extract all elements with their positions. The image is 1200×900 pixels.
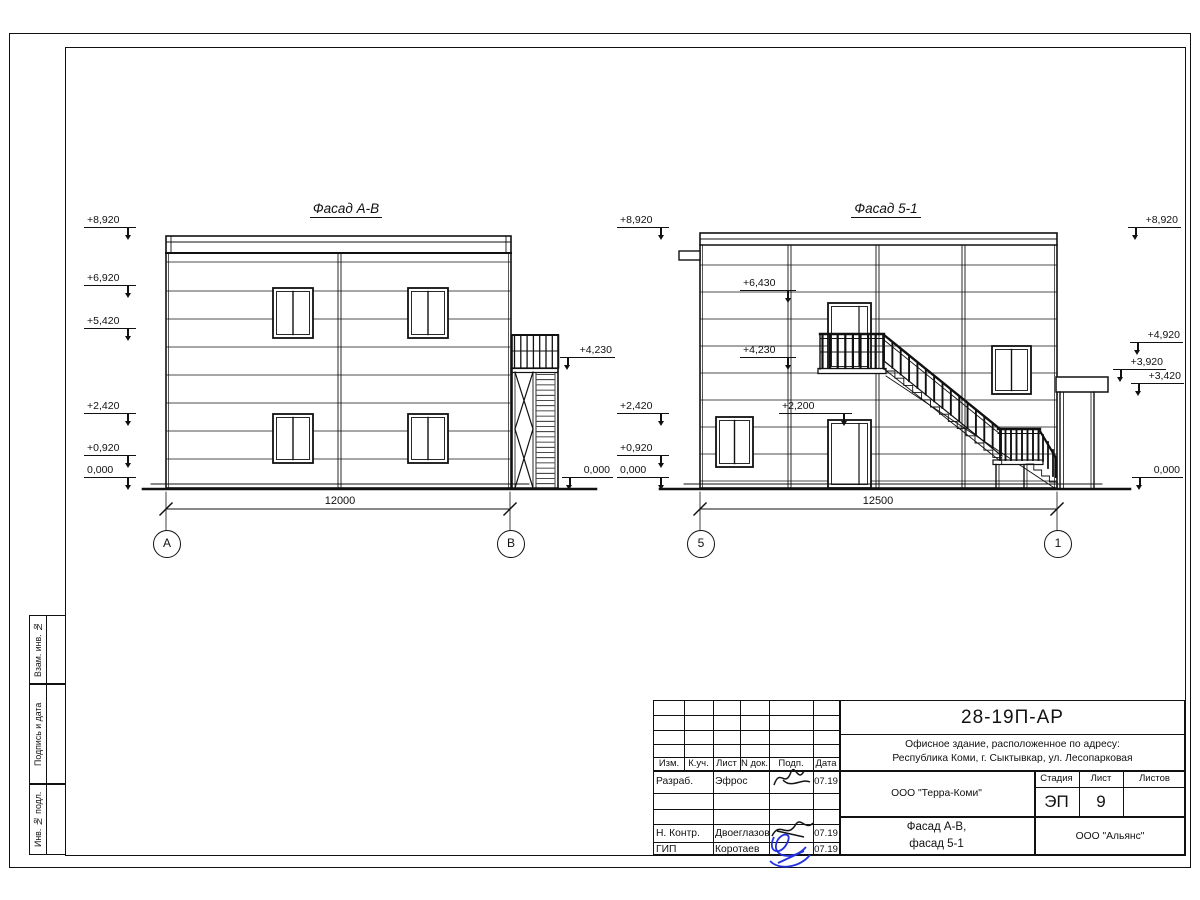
elevation-mark: +0,920 (84, 442, 136, 456)
elevation-mark: +6,430 (740, 277, 796, 291)
divider (46, 616, 47, 683)
row-role: ГИП (656, 842, 712, 856)
side-stamp-label: Взам. инв. № (30, 616, 46, 683)
row-name: Эфрос (715, 770, 768, 793)
axis-marker-5: 5 (687, 530, 715, 558)
facade-51-title: Фасад 5-1 (826, 201, 946, 217)
elevation-mark: +4,230 (740, 344, 796, 358)
row-name: Коротаев (715, 842, 769, 856)
elevation-mark: 0,000 (84, 464, 136, 478)
dimension-value: 12500 (843, 495, 913, 507)
side-stamp-inv: Инв. № подл. (29, 784, 66, 855)
sheet-number: 9 (1079, 787, 1123, 816)
sheets-label: Листов (1123, 770, 1186, 787)
facade-ab-wall (166, 236, 511, 488)
contractor-org: ООО "Альянс" (1034, 816, 1186, 856)
axis-marker-a: А (153, 530, 181, 558)
row-date: 07.19 (813, 770, 839, 793)
elevation-mark: +0,920 (617, 442, 669, 456)
col-kuch: К.уч. (684, 757, 713, 770)
facade-ab-ground-line (143, 484, 596, 489)
stage-label: Стадия (1034, 770, 1079, 787)
design-org: ООО "Терра-Коми" (839, 770, 1034, 816)
facade-ab-title: Фасад А-В (286, 201, 406, 217)
col-izm: Изм. (654, 757, 684, 770)
divider (46, 685, 47, 783)
dimension-value: 12000 (305, 495, 375, 507)
elevation-mark: +4,230 (560, 344, 615, 358)
col-data: Дата (813, 757, 839, 770)
elevation-mark: +5,420 (84, 315, 136, 329)
document-code: 28-19П-АР (839, 701, 1186, 734)
elevation-mark: +2,200 (779, 400, 852, 414)
elevation-mark: +2,420 (84, 400, 136, 414)
facade-ab-stair-tower (511, 335, 559, 488)
elevation-mark: +8,920 (84, 214, 136, 228)
col-list: Лист (713, 757, 740, 770)
elevation-mark: 0,000 (562, 464, 613, 478)
axis-marker-1: 1 (1044, 530, 1072, 558)
signature-gip (764, 829, 818, 873)
elevation-mark: +3,920 (1113, 356, 1166, 370)
sheet-label: Лист (1079, 770, 1123, 787)
elevation-mark: +6,920 (84, 272, 136, 286)
object-address-line2: Республика Коми, г. Сыктывкар, ул. Лесоп… (839, 751, 1186, 765)
elevation-mark: +8,920 (617, 214, 669, 228)
elevation-mark: +4,920 (1130, 329, 1183, 343)
side-stamp-label: Инв. № подл. (30, 785, 46, 854)
divider (46, 785, 47, 854)
elevation-mark: +2,420 (617, 400, 669, 414)
facade-ab-windows (273, 288, 448, 463)
col-ndok: N док. (740, 757, 769, 770)
elevation-mark: +8,920 (1128, 214, 1181, 228)
row-role: Н. Контр. (656, 824, 712, 842)
facade-51-annex-canopy (1056, 377, 1108, 488)
row-role: Разраб. (656, 770, 712, 793)
side-stamp-vzam: Взам. инв. № (29, 615, 66, 684)
row-name: Двоеглазов (715, 824, 769, 842)
object-address-line1: Офисное здание, расположенное по адресу: (839, 737, 1186, 751)
signature-razrab (771, 763, 813, 793)
sheet-title-line2: фасад 5-1 (839, 835, 1034, 854)
side-stamp-podpis: Подпись и дата (29, 684, 66, 784)
axis-marker-b: В (497, 530, 525, 558)
drawing-sheet: Фасад А-В Фасад 5-1 +8,920 +6,920 +5,420… (0, 0, 1200, 900)
title-block: Изм. К.уч. Лист N док. Подп. Дата Разраб… (653, 700, 1185, 855)
elevation-mark: +3,420 (1131, 370, 1184, 384)
facade-51-doors (828, 303, 871, 488)
elevation-mark: 0,000 (1132, 464, 1183, 478)
side-stamp-label: Подпись и дата (30, 685, 46, 783)
elevation-mark: 0,000 (617, 464, 669, 478)
stage-value: ЭП (1034, 787, 1079, 816)
